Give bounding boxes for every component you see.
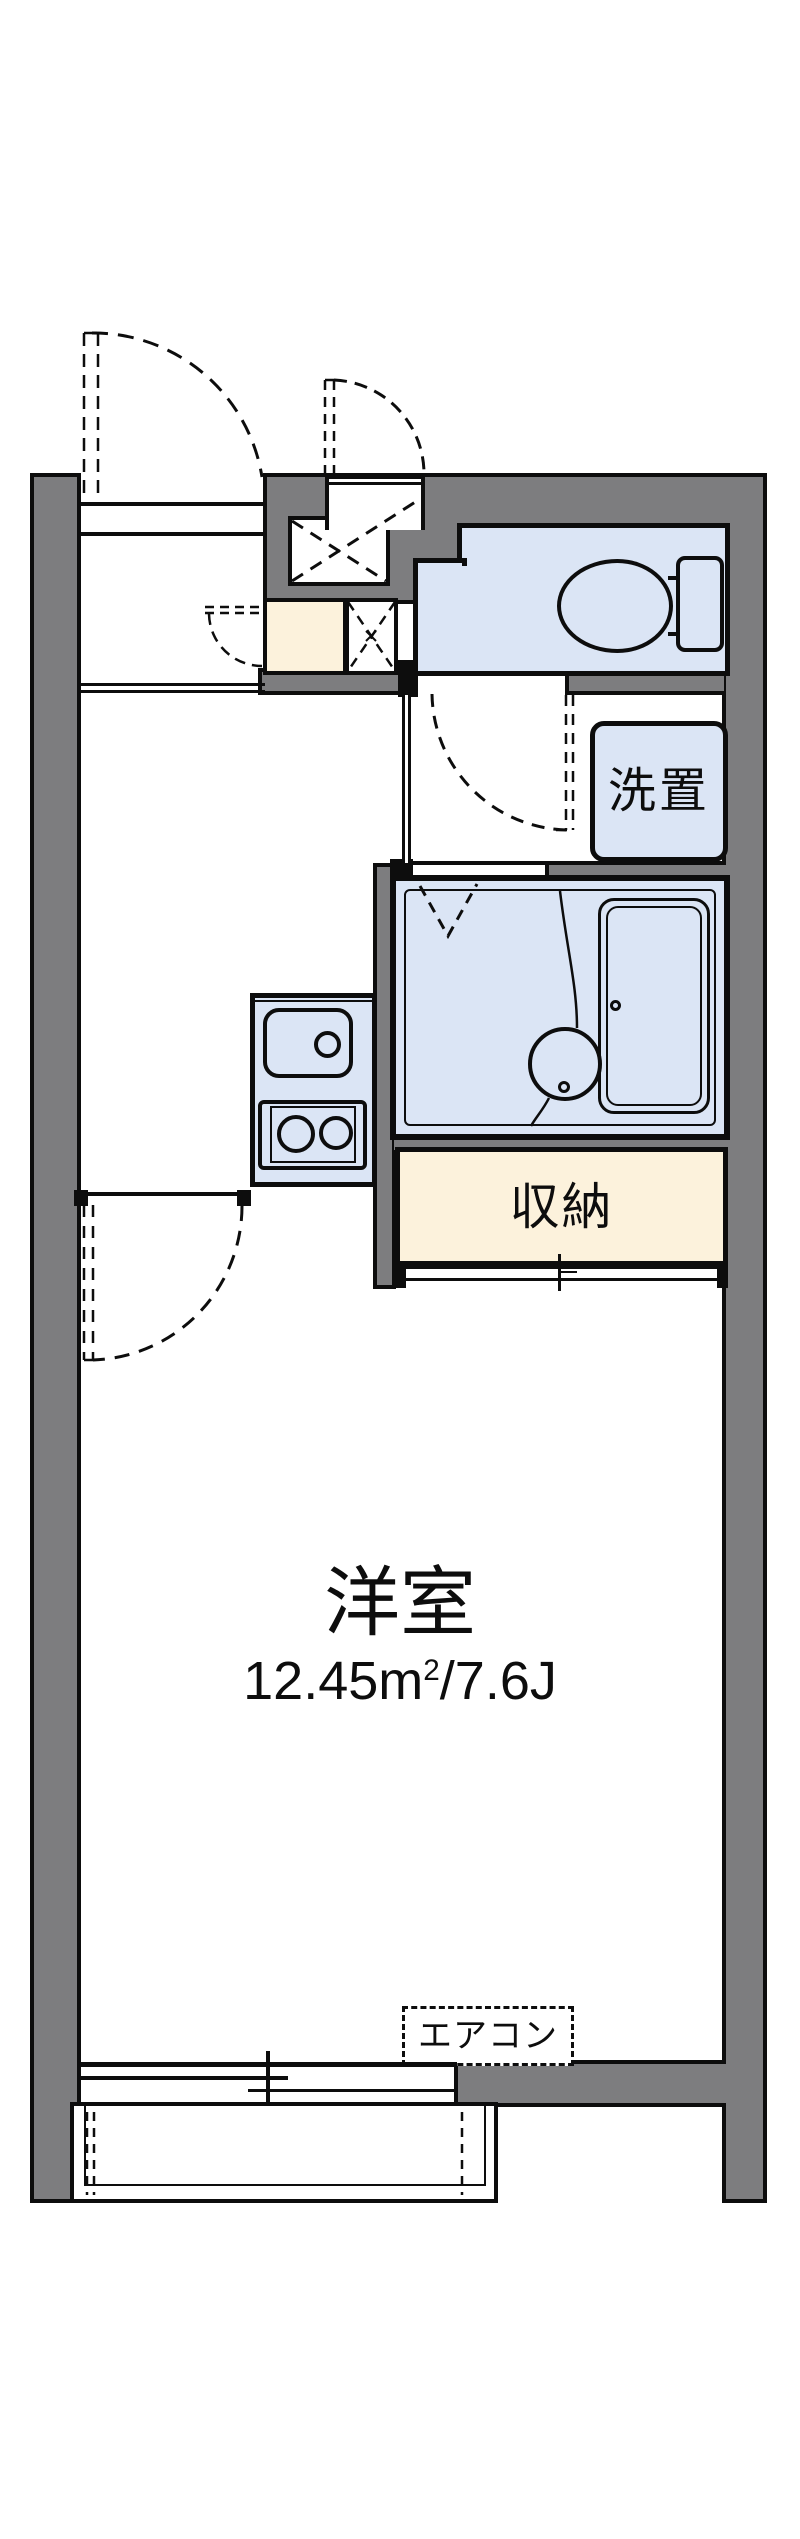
toilet-bowl-icon (557, 559, 673, 653)
closet-slider-line-1 (402, 1266, 722, 1269)
closet-slider-tick-h (561, 1271, 577, 1273)
entrance-door-arc (92, 333, 262, 477)
air-conditioner-box: エアコン (402, 2006, 574, 2066)
pipe-space (345, 598, 398, 675)
window-upper-sash (81, 2076, 288, 2080)
main-room-area: 12.45m2/7.6J (140, 1654, 660, 1714)
entrance-threshold-line-inner (81, 532, 263, 536)
toilet-room-join (455, 566, 469, 671)
shoe-cabinet (263, 598, 347, 675)
closet: 収納 (395, 1147, 728, 1266)
area-sup: 2 (423, 1654, 440, 1687)
wall-under-toilet (569, 676, 724, 691)
closet-slider-cap-right (717, 1262, 728, 1288)
entrance-threshold-line-outer (81, 502, 263, 506)
toilet-tank-icon (676, 556, 724, 652)
aircon-label: エアコン (418, 2019, 558, 2053)
room-opening-line (81, 1192, 243, 1196)
kitchen-faucet-icon (314, 1031, 341, 1058)
shoe-cabinet-door-arc (209, 614, 262, 666)
room-door-arc (93, 1206, 242, 1360)
washroom-door-arc (432, 694, 570, 830)
closet-slider-line-2 (402, 1278, 722, 1281)
wall-bottom-right (458, 2064, 763, 2103)
toilet-joint-top (668, 576, 678, 580)
area-suffix: /7.6J (440, 1651, 557, 1711)
bath-doorway (413, 865, 545, 875)
toilet-joint-bottom (668, 632, 678, 636)
hall-boundary-line-2 (81, 690, 265, 693)
meter-box-door-leaf (325, 380, 334, 473)
closet-slider-cap-left (395, 1262, 406, 1288)
area-value: 12.45m (243, 1651, 423, 1711)
laundry-label: 洗置 (608, 768, 710, 816)
shoe-cabinet-door-leaf (205, 607, 263, 613)
washing-machine-space: 洗置 (590, 721, 728, 862)
hall-boundary-line-1 (81, 683, 265, 686)
stove-burner-right (319, 1116, 353, 1150)
meter-box-door-arc (334, 380, 424, 472)
room-opening-jamb-right (237, 1190, 251, 1206)
stove-burner-left (277, 1115, 315, 1153)
washroom-door-leaf (556, 695, 573, 830)
entrance-door-leaf (84, 333, 98, 500)
basin-drain-dot (558, 1081, 570, 1093)
closet-label: 収納 (510, 1182, 614, 1232)
balcony-inner-rail (84, 2102, 486, 2186)
main-room-label: 洋室 (180, 1566, 620, 1646)
thin-partition-wall (402, 695, 411, 863)
wall-left (34, 477, 77, 2199)
meter-box-door-line-1 (325, 476, 425, 479)
room-door-leaf (84, 1205, 93, 1360)
kitchen-counter-line (255, 1000, 372, 1002)
wall-right (726, 477, 763, 2199)
room-opening-jamb-left (74, 1190, 88, 1206)
bathtub-handle-dot (610, 1000, 621, 1011)
wall-bath-top (549, 865, 726, 875)
window-lower-sash (248, 2089, 457, 2092)
floorplan-canvas: 洗置 収納 洋室 12.45m2/7.6J エアコン (0, 0, 800, 2539)
meter-box-door-line-2 (325, 482, 425, 485)
